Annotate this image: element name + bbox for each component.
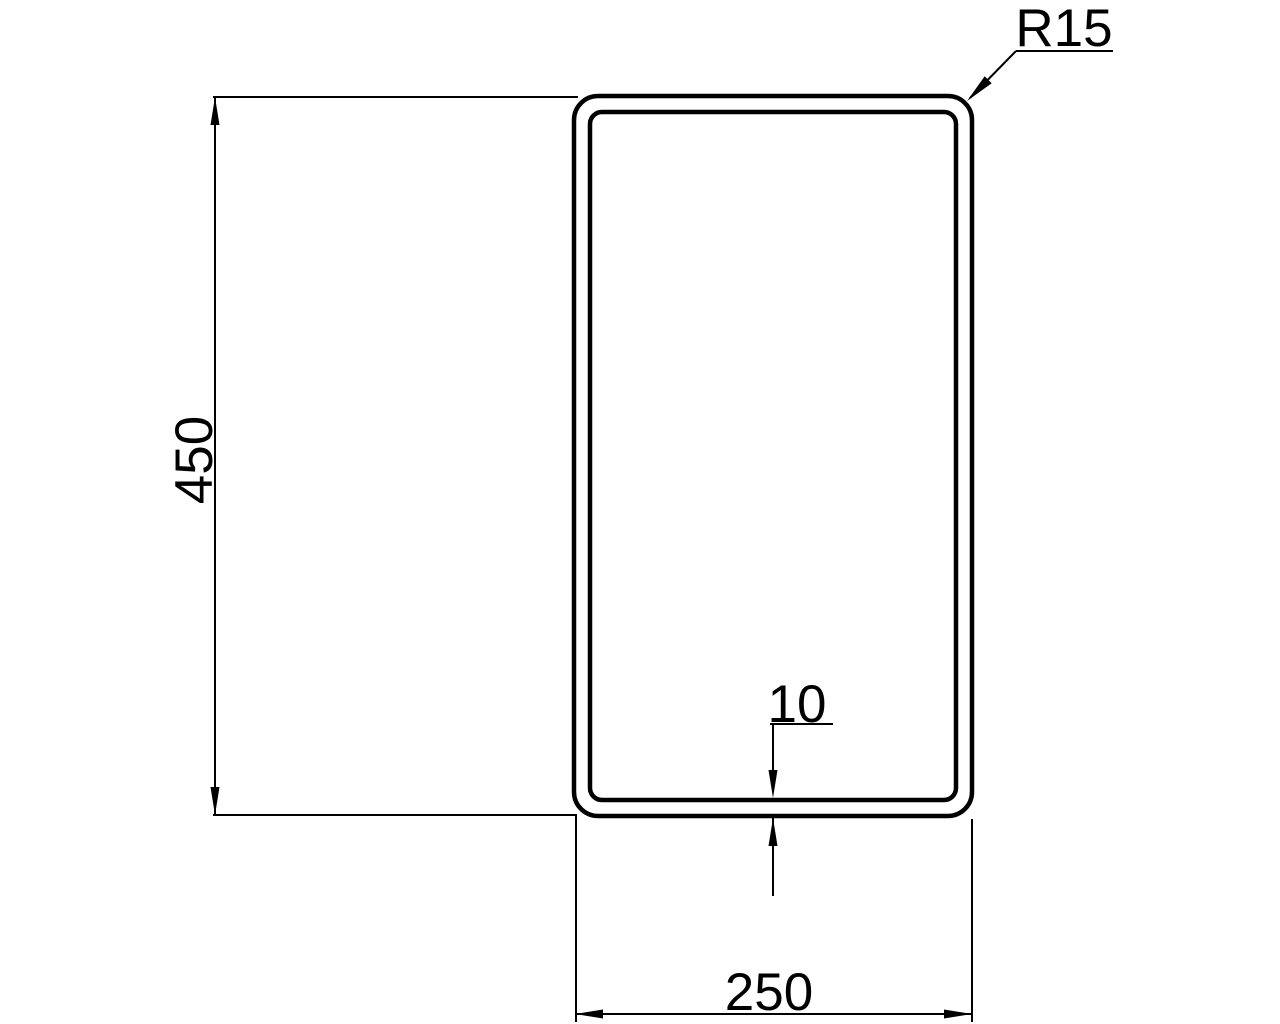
thickness-arrow-down-icon — [769, 770, 778, 798]
width-arrow-right-icon — [944, 1010, 972, 1019]
height-extension-line-bottom — [213, 815, 576, 1022]
thickness-dimension: 10 — [768, 675, 833, 896]
height-dimension: 450 — [165, 97, 578, 1022]
height-dimension-label: 450 — [165, 416, 224, 504]
thickness-dimension-label: 10 — [768, 675, 827, 734]
technical-drawing-svg: 450 250 10 R15 — [0, 0, 1280, 1024]
radius-arrow-icon — [967, 76, 992, 101]
height-arrow-top-icon — [211, 97, 220, 125]
drawing-canvas: 450 250 10 R15 — [0, 0, 1280, 1024]
height-arrow-bottom-icon — [211, 787, 220, 815]
radius-callout: R15 — [967, 0, 1113, 101]
width-arrow-left-icon — [575, 1010, 603, 1019]
radius-dimension-label: R15 — [1015, 0, 1112, 58]
width-dimension-label: 250 — [725, 963, 813, 1022]
thickness-arrow-up-icon — [769, 818, 778, 846]
